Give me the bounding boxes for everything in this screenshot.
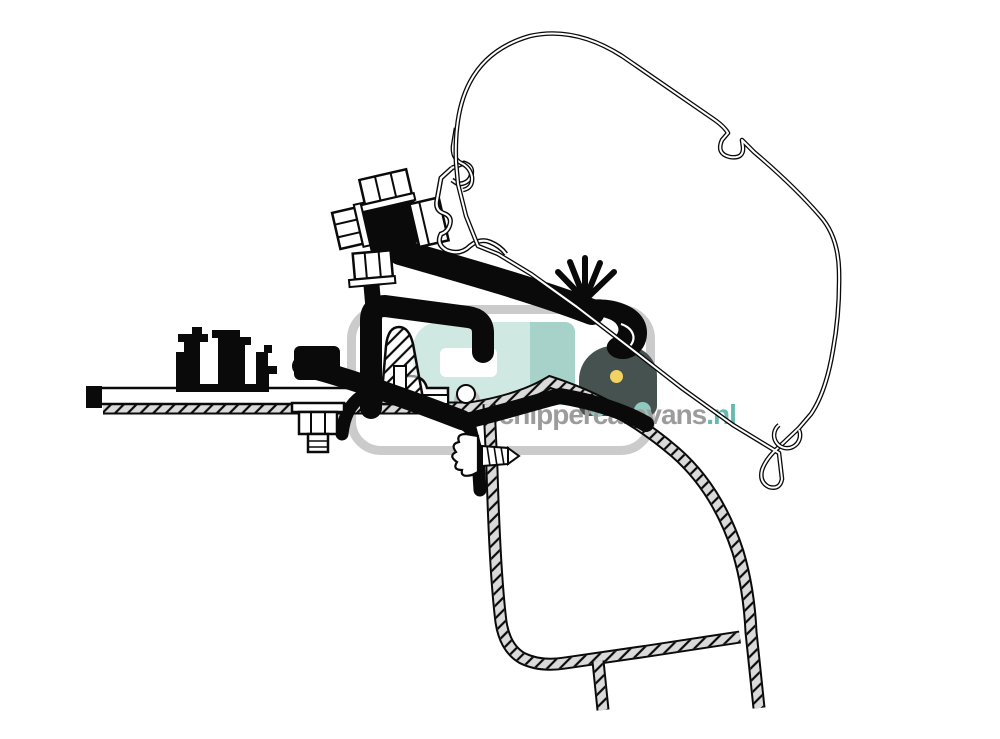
roof-bolt [292,403,344,452]
t-bolt-head [294,346,340,380]
self-tapping-screw [482,446,519,466]
vehicle-roof-and-outer-wall [103,382,759,708]
rivet-head [457,385,475,403]
plate-end-cap [86,386,102,408]
technical-drawing-page: Schippercaravans.nl [0,0,1000,739]
awning-adapter-diagram [0,0,1000,739]
roof-rail-profile [176,327,277,392]
vehicle-inner-wall [489,404,740,710]
rail-hook [586,299,647,359]
fastener-clip [452,434,478,476]
